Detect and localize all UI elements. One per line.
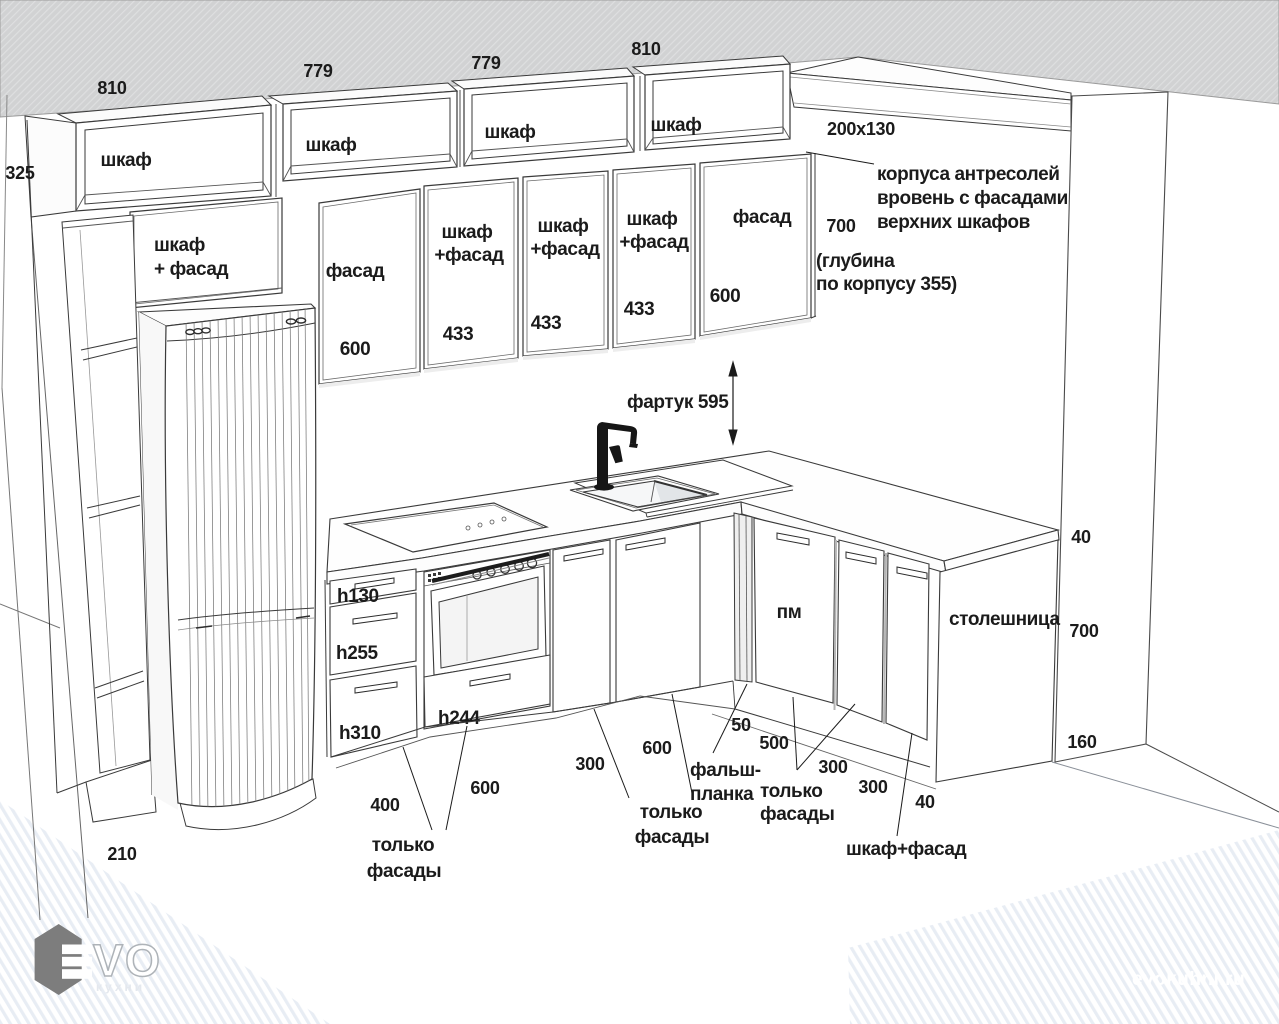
svg-text:шкаф: шкаф [485,122,536,143]
svg-text:вровень с фасадами: вровень с фасадами [877,188,1068,209]
svg-text:h255: h255 [336,643,379,664]
svg-text:фартук 595: фартук 595 [627,392,729,413]
svg-text:433: 433 [531,313,562,334]
svg-text:779: 779 [303,61,332,81]
svg-text:только: только [640,802,702,823]
svg-text:+фасад: +фасад [434,245,504,266]
svg-text:шкаф: шкаф [538,216,589,237]
svg-text:верхних шкафов: верхних шкафов [877,212,1030,233]
svg-text:h244: h244 [438,708,481,729]
svg-text:кухни: кухни [96,980,145,994]
svg-text:шкаф: шкаф [627,209,678,230]
svg-text:600: 600 [642,738,671,758]
svg-text:фасады: фасады [367,861,441,882]
svg-text:200х130: 200х130 [827,119,895,139]
svg-text:столешница: столешница [949,609,1060,630]
svg-text:779: 779 [471,53,500,73]
svg-text:700: 700 [1069,621,1098,641]
svg-text:+ фасад: + фасад [154,259,229,280]
svg-text:пм: пм [777,602,802,623]
svg-text:только: только [760,781,822,802]
svg-text:шкаф: шкаф [442,222,493,243]
svg-text:700: 700 [826,216,855,236]
svg-text:433: 433 [624,299,655,320]
svg-text:фальш-: фальш- [690,760,761,781]
svg-text:600: 600 [710,286,741,307]
svg-text:300: 300 [858,777,887,797]
svg-text:300: 300 [575,754,604,774]
svg-text:160: 160 [1067,732,1096,752]
svg-text:фасады: фасады [635,827,709,848]
svg-text:+фасад: +фасад [530,239,600,260]
svg-text:шкаф: шкаф [154,235,205,256]
svg-text:600: 600 [470,778,499,798]
svg-text:фасады: фасады [760,804,834,825]
svg-text:корпуса антресолей: корпуса антресолей [877,164,1060,185]
svg-text:210: 210 [107,844,136,864]
svg-text:810: 810 [97,78,126,98]
svg-text:433: 433 [443,324,474,345]
svg-text:40: 40 [915,792,935,812]
svg-text:фасад: фасад [326,261,385,282]
svg-text:40: 40 [1071,527,1091,547]
svg-text:h130: h130 [337,586,379,607]
svg-text:50: 50 [731,715,751,735]
svg-text:фасад: фасад [733,207,792,228]
svg-text:400: 400 [370,795,399,815]
svg-text:+фасад: +фасад [619,232,689,253]
svg-text:шкаф: шкаф [306,135,357,156]
svg-text:шкаф+фасад: шкаф+фасад [846,839,967,860]
svg-text:шкаф: шкаф [651,115,702,136]
svg-text:(глубина: (глубина [816,251,895,272]
svg-text:h310: h310 [339,723,381,744]
svg-text:evokuhni.ru: evokuhni.ru [1132,969,1245,990]
svg-text:только: только [372,835,434,856]
svg-text:810: 810 [631,39,660,59]
svg-text:по корпусу 355): по корпусу 355) [816,274,957,295]
svg-text:500: 500 [759,733,788,753]
svg-text:300: 300 [818,757,847,777]
svg-text:шкаф: шкаф [101,150,152,171]
svg-text:325: 325 [5,163,34,183]
svg-text:600: 600 [340,339,371,360]
svg-text:планка: планка [690,784,754,805]
svg-text:VO: VO [93,935,162,986]
